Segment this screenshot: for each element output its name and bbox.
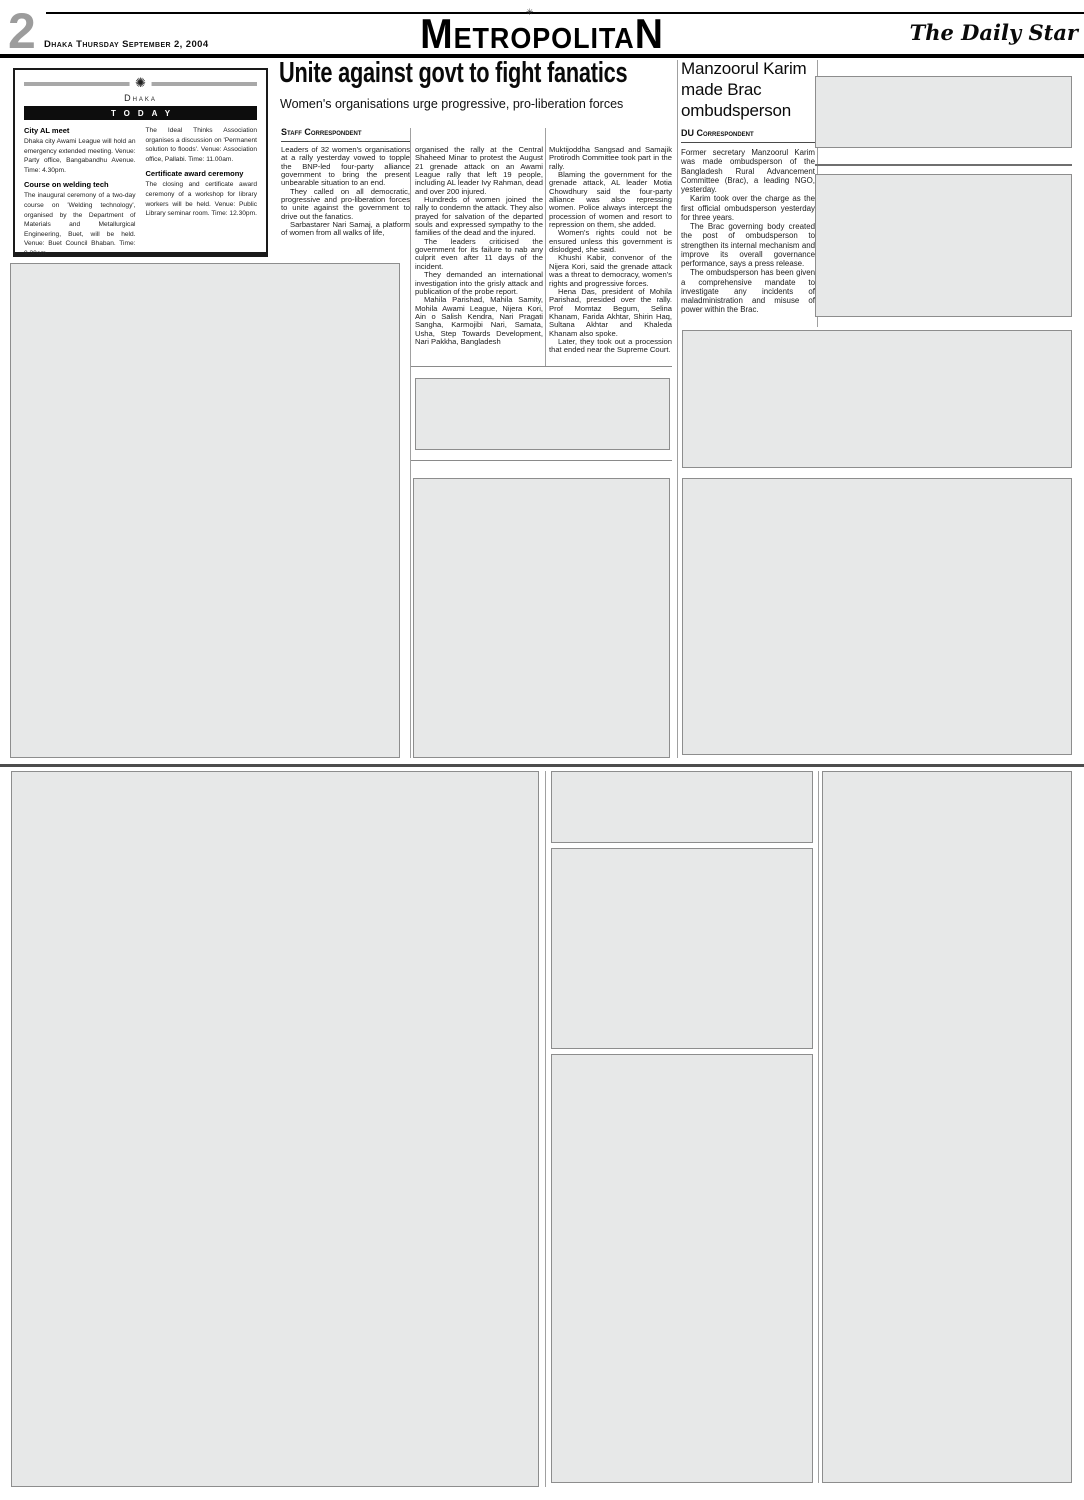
event-heading: Certificate award ceremony — [146, 169, 258, 179]
lead-article-column-2: organised the rally at the Central Shahe… — [415, 146, 543, 346]
lead-headline: Unite against govt to fight fanatics — [279, 58, 677, 90]
paragraph: Blaming the government for the grenade a… — [549, 171, 672, 229]
ad-placeholder-bottom-middle-1 — [551, 771, 813, 843]
masthead-ornament-icon: ✳ — [526, 7, 534, 18]
section-title: MetropolitaN — [38, 13, 1046, 55]
masthead-logo: The Daily Star — [910, 20, 1078, 45]
column-rule — [545, 128, 546, 366]
paragraph: Leaders of 32 women's organisations at a… — [281, 146, 410, 188]
column-rule — [545, 771, 546, 1487]
lead-article-column-3: Muktijoddha Sangsad and Samajik Protirod… — [549, 146, 672, 355]
paragraph: Karim took over the charge as the first … — [681, 194, 815, 222]
paragraph: They demanded an international investiga… — [415, 271, 543, 296]
event-item: The Ideal Thinks Association organises a… — [146, 126, 258, 164]
ad-placeholder-top-right-1 — [815, 76, 1072, 148]
paragraph: The leaders criticised the government fo… — [415, 238, 543, 271]
photo-placeholder-lead — [10, 263, 400, 758]
column-rule — [410, 128, 411, 758]
paragraph: Muktijoddha Sangsad and Samajik Protirod… — [549, 146, 672, 171]
event-item: City AL meet Dhaka city Awami League wil… — [24, 126, 136, 175]
paragraph: Sarbastarer Nari Samaj, a platform of wo… — [281, 221, 410, 238]
ad-placeholder-right-wide-2 — [682, 478, 1072, 755]
section-separator-rule — [0, 764, 1084, 767]
event-heading: Course on welding tech — [24, 180, 136, 190]
ad-placeholder-middle-large — [413, 478, 670, 758]
brac-byline: DU Correspondent — [681, 128, 815, 143]
today-decorative-rule: ✺ — [24, 77, 257, 92]
article-end-rule — [411, 366, 672, 367]
paragraph: organised the rally at the Central Shahe… — [415, 146, 543, 196]
event-body: The Ideal Thinks Association organises a… — [146, 126, 258, 164]
column-rule — [818, 771, 819, 1483]
paragraph: Hena Das, president of Mohila Parishad, … — [549, 288, 672, 338]
ad-placeholder-bottom-left — [11, 771, 539, 1487]
ad-placeholder-right-wide-1 — [682, 330, 1072, 468]
ad-placeholder-bottom-middle-3 — [551, 1054, 813, 1483]
event-body: Dhaka city Awami League will hold an eme… — [24, 137, 136, 175]
today-events-box: ✺ Dhaka TODAY City AL meet Dhaka city Aw… — [13, 68, 268, 257]
paragraph: Khushi Kabir, convenor of the Nijera Kor… — [549, 254, 672, 287]
ad-placeholder-middle-small — [415, 378, 670, 450]
paragraph: Hundreds of women joined the rally to co… — [415, 196, 543, 238]
today-banner: TODAY — [24, 106, 257, 120]
lead-byline: Staff Correspondent — [281, 127, 410, 142]
newspaper-page: 2 Dhaka Thursday September 2, 2004 Metro… — [0, 0, 1084, 1500]
today-right-column: The Ideal Thinks Association organises a… — [146, 126, 258, 279]
column-rule — [677, 60, 678, 758]
ad-placeholder-top-right-2 — [815, 174, 1072, 317]
event-body: The inaugural ceremony of a two-day cour… — [24, 191, 136, 258]
ad-placeholder-bottom-right — [822, 771, 1072, 1483]
paragraph: They called on all democratic, progressi… — [281, 188, 410, 221]
ad-placeholder-bottom-middle-2 — [551, 848, 813, 1049]
today-kicker: Dhaka — [24, 93, 257, 103]
brac-article-column: Former secretary Manzoorul Karim was mad… — [681, 148, 815, 315]
today-left-column: City AL meet Dhaka city Awami League wil… — [24, 126, 136, 279]
event-body: The closing and certificate award ceremo… — [146, 180, 258, 218]
event-heading: City AL meet — [24, 126, 136, 136]
paragraph: The Brac governing body created the post… — [681, 222, 815, 268]
lead-subhead: Women's organisations urge progressive, … — [280, 97, 680, 111]
paragraph: Mahila Parishad, Mahila Samity, Mohila A… — [415, 296, 543, 346]
divider-rule — [411, 460, 672, 461]
paragraph: Former secretary Manzoorul Karim was mad… — [681, 148, 815, 194]
paragraph: Later, they took out a procession that e… — [549, 338, 672, 355]
paragraph: Women's rights could not be ensured unle… — [549, 229, 672, 254]
divider-rule — [815, 164, 1072, 166]
lead-article-column-1: Leaders of 32 women's organisations at a… — [281, 146, 410, 238]
event-item: Certificate award ceremony The closing a… — [146, 169, 258, 218]
brac-headline: Manzoorul Karim made Brac ombudsperson — [681, 58, 817, 121]
page-number: 2 — [8, 6, 36, 56]
paragraph: The ombudsperson has been given a compre… — [681, 268, 815, 314]
event-item: Course on welding tech The inaugural cer… — [24, 180, 136, 258]
sun-ornament-icon: ✺ — [129, 74, 152, 92]
